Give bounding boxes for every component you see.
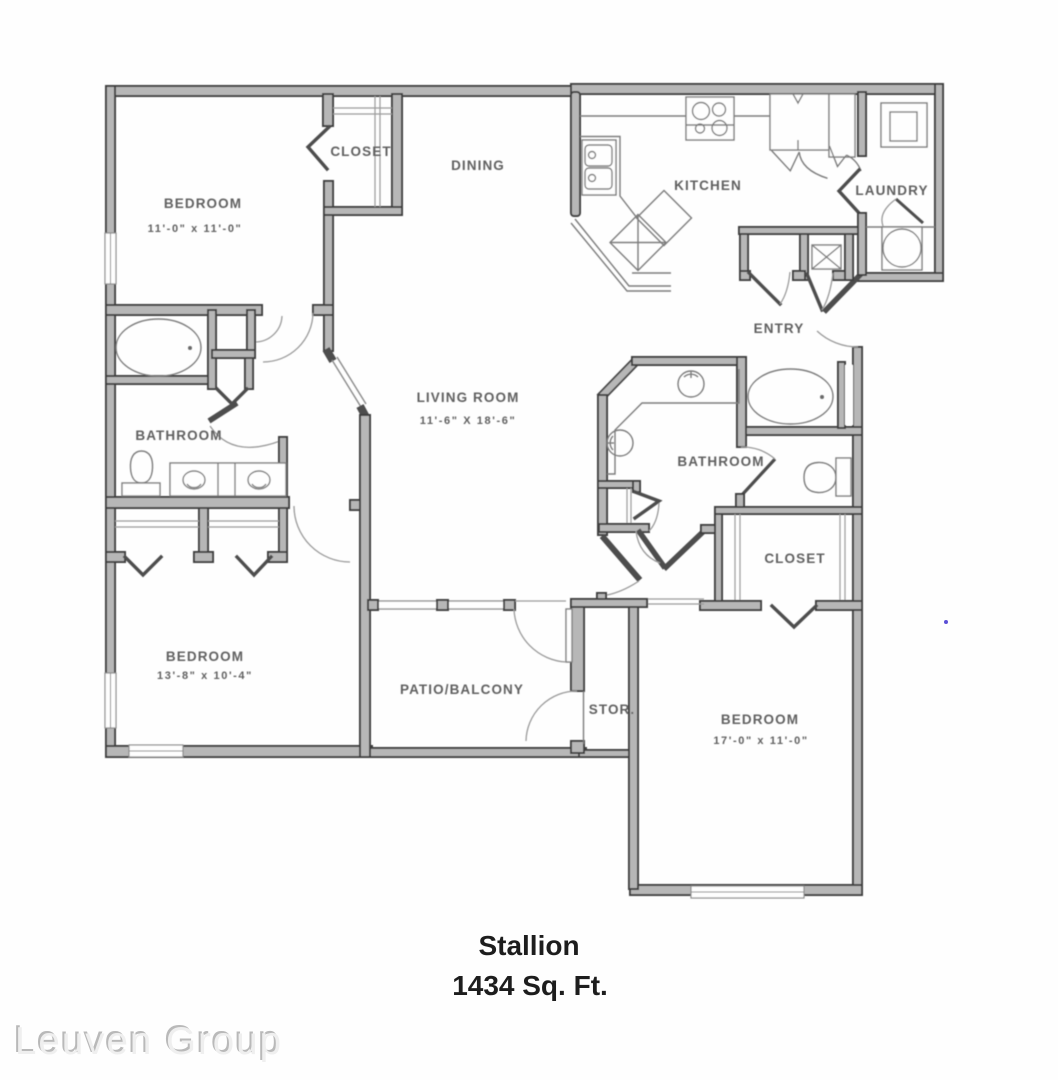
svg-text:BATHROOM: BATHROOM: [677, 454, 764, 469]
svg-text:Stallion: Stallion: [478, 930, 579, 961]
svg-text:ENTRY: ENTRY: [754, 321, 805, 336]
svg-text:BEDROOM: BEDROOM: [164, 196, 242, 211]
svg-text:PATIO/BALCONY: PATIO/BALCONY: [400, 682, 524, 697]
svg-text:KITCHEN: KITCHEN: [674, 178, 742, 193]
svg-text:BEDROOM: BEDROOM: [166, 649, 244, 664]
svg-text:11'-0" x 11'-0": 11'-0" x 11'-0": [148, 223, 243, 235]
svg-text:CLOSET: CLOSET: [330, 144, 391, 159]
svg-text:13'-8" x 10'-4": 13'-8" x 10'-4": [157, 670, 253, 682]
svg-text:LIVING ROOM: LIVING ROOM: [417, 390, 520, 405]
svg-text:STOR.: STOR.: [589, 702, 636, 717]
svg-text:DINING: DINING: [451, 158, 505, 173]
svg-text:CLOSET: CLOSET: [764, 551, 825, 566]
svg-text:BATHROOM: BATHROOM: [135, 428, 222, 443]
svg-text:1434 Sq. Ft.: 1434 Sq. Ft.: [452, 970, 608, 1001]
svg-text:17'-0" x 11'-0": 17'-0" x 11'-0": [713, 735, 808, 747]
svg-text:LAUNDRY: LAUNDRY: [855, 183, 928, 198]
svg-text:11'-6" X 18'-6": 11'-6" X 18'-6": [420, 415, 517, 427]
svg-text:BEDROOM: BEDROOM: [721, 712, 799, 727]
svg-text:Leuven Group: Leuven Group: [15, 1020, 283, 1063]
